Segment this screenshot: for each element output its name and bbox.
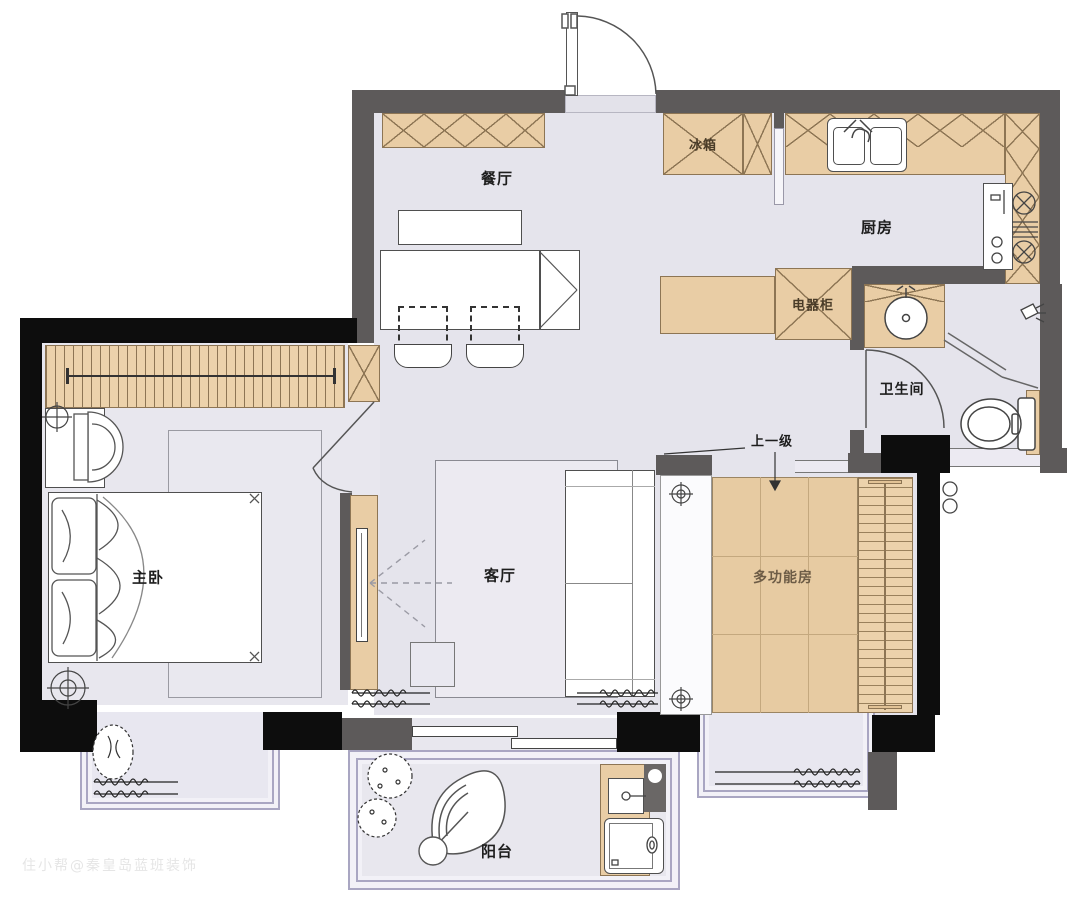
room-label-balcony: 阳台 xyxy=(481,841,513,862)
wardrobe-center-rail xyxy=(884,480,886,710)
laundry-wall-panel xyxy=(644,764,666,812)
side-table xyxy=(410,642,455,687)
platform-grid xyxy=(808,477,809,713)
dining-table-extension xyxy=(540,250,580,330)
pipe-riser-icon xyxy=(943,482,957,513)
room-label-bathroom: 卫生间 xyxy=(880,379,925,399)
desk xyxy=(45,408,105,488)
toilet-side-strip xyxy=(1026,390,1040,455)
wall xyxy=(20,318,357,343)
sofa-armrest-line xyxy=(565,486,655,487)
wardrobe-cap xyxy=(868,480,902,484)
sliding-door-panel xyxy=(412,726,518,737)
wall xyxy=(868,752,897,810)
wall xyxy=(263,712,342,750)
sliding-door-panel xyxy=(511,738,617,749)
room-label-kitchen: 厨房 xyxy=(861,217,893,238)
tv-screen-line xyxy=(361,533,362,637)
wall xyxy=(850,284,864,350)
watermark: 住小帮@秦皇岛蓝班装饰 xyxy=(22,855,198,875)
wall xyxy=(872,715,935,752)
annotation-step-up: 上一级 xyxy=(751,431,793,450)
wardrobe-end-cabinet xyxy=(348,345,380,402)
wall xyxy=(774,113,784,128)
tv xyxy=(356,528,368,642)
wall xyxy=(617,712,700,752)
multi-bay-window-floor xyxy=(709,712,863,786)
dining-chair-back xyxy=(394,344,452,368)
cabinet-cell xyxy=(383,114,424,147)
wardrobe-rod-cap xyxy=(333,368,336,384)
sofa-back-line xyxy=(632,470,633,697)
wall xyxy=(1040,448,1067,473)
room-label-multi-room: 多功能房 xyxy=(753,567,813,587)
wardrobe-rod-cap xyxy=(66,368,69,384)
room-label-master-bedroom: 主卧 xyxy=(132,567,164,588)
entry-threshold xyxy=(565,95,656,113)
wall xyxy=(352,90,565,113)
wall xyxy=(656,455,712,475)
washer-inner xyxy=(609,823,653,869)
bathroom-vanity xyxy=(864,284,945,348)
entry-cabinet xyxy=(743,113,772,175)
entry-door-leaf xyxy=(566,12,578,96)
corridor-window xyxy=(795,460,848,473)
cabinet-cell xyxy=(506,114,544,147)
wall xyxy=(1037,90,1060,284)
wall xyxy=(656,90,1040,113)
cabinet-cell xyxy=(465,114,506,147)
sideboard xyxy=(398,210,522,245)
tatami-platform xyxy=(712,477,858,713)
wall xyxy=(850,430,864,453)
wardrobe-rod xyxy=(68,375,335,377)
wardrobe-cap xyxy=(868,705,902,709)
corridor-cabinet xyxy=(660,276,775,334)
multi-room-walkway xyxy=(660,475,712,715)
dining-cabinet xyxy=(382,113,545,148)
platform-grid xyxy=(712,634,858,635)
wall xyxy=(917,473,940,715)
wall xyxy=(20,700,97,752)
platform-grid xyxy=(760,477,761,713)
sofa-cushion-line xyxy=(565,583,632,584)
floor-door-gap xyxy=(340,400,380,495)
kitchen-window xyxy=(774,128,784,205)
wall xyxy=(352,113,374,343)
fixture-label-fridge: 冰箱 xyxy=(689,135,717,154)
wall xyxy=(881,435,950,473)
room-label-dining: 餐厅 xyxy=(481,168,513,189)
cabinet-cell xyxy=(962,114,1004,147)
stove-panel xyxy=(983,183,1013,270)
fixture-label-appliance-cabinet: 电器柜 xyxy=(792,295,834,314)
cabinet-cell xyxy=(865,285,944,302)
sofa-armrest-line xyxy=(565,679,655,680)
bedroom-bay-window-floor xyxy=(92,712,268,798)
dining-chair-back xyxy=(466,344,524,368)
sink-basin xyxy=(870,127,902,165)
platform-grid xyxy=(712,556,858,557)
wall xyxy=(1040,284,1062,470)
sink-basin xyxy=(833,127,865,165)
cabinet-cell xyxy=(918,114,962,147)
cabinet-cell xyxy=(424,114,465,147)
room-label-living: 客厅 xyxy=(484,565,516,586)
laundry-sink xyxy=(608,778,644,814)
floor-plan: 餐厅 厨房 冰箱 电器柜 卫生间 上一级 主卧 客厅 多功能房 阳台 住小帮@秦… xyxy=(0,0,1080,899)
cabinet-cell xyxy=(786,114,830,147)
wall xyxy=(20,318,42,718)
cabinet-cell xyxy=(1006,114,1039,149)
wall xyxy=(848,453,882,473)
wall xyxy=(340,718,412,750)
